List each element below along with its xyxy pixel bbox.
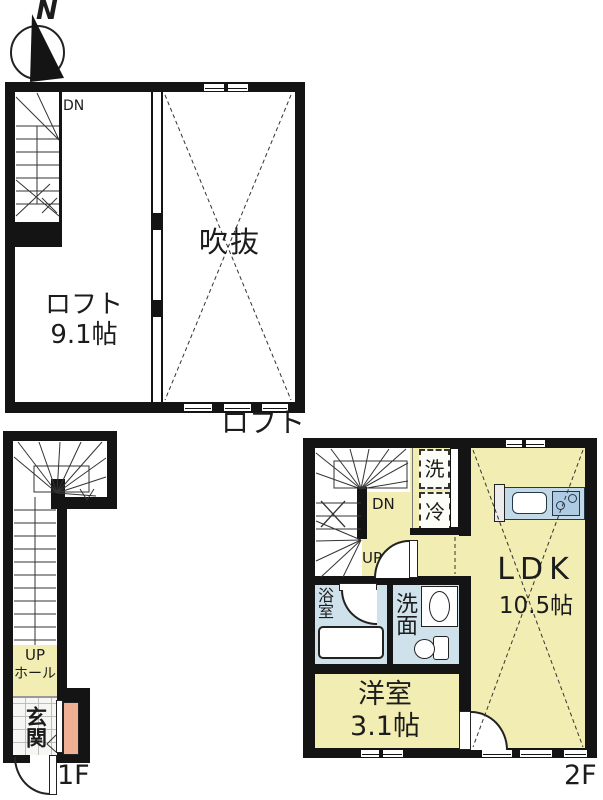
floor1-entry-door-slot <box>56 700 63 753</box>
bedroom-name: 洋室 <box>328 679 442 709</box>
floor2-partition-wall <box>450 448 459 528</box>
fridge-space: 冷 <box>419 492 451 532</box>
compass-circle <box>10 25 65 80</box>
bathroom-label: 浴室 <box>316 587 332 619</box>
stove-burner <box>556 501 565 510</box>
void-room-label: 吹抜 <box>188 226 272 258</box>
floor2-stairs-column <box>315 492 362 578</box>
ldk-room-name: LDK <box>488 553 584 587</box>
toilet-bowl <box>414 639 435 659</box>
bedroom-ldk-door-leaf <box>459 711 471 750</box>
floor2-stairs-down-label: DN <box>372 497 395 512</box>
toilet-tank <box>433 636 449 660</box>
floorplan-canvas: N <box>0 0 603 800</box>
floor1-caption: 1F <box>57 762 90 789</box>
floor1-hall-label: ホール <box>11 666 59 682</box>
floor2-caption: 2F <box>564 762 597 789</box>
ldk-top-window-mullion <box>522 439 526 448</box>
bedroom-window-mullion <box>379 749 383 758</box>
floor2-stairs-upper <box>315 448 410 492</box>
loft-top-window-mullion <box>224 83 228 92</box>
floor2-wall-kitchen-side <box>459 448 471 536</box>
loft-bottom-window <box>183 403 213 412</box>
ldk-bottom-window <box>563 749 588 758</box>
floor2-wall-ldk-side <box>459 576 471 711</box>
ldk-bottom-window <box>519 749 553 758</box>
loft-divider-post <box>151 300 163 317</box>
floor1-stairs-up-label: UP <box>13 647 57 664</box>
stove-burner <box>568 494 577 503</box>
loft-caption: ロフト <box>221 409 305 437</box>
floor1-entrance-label: 玄関 <box>13 701 57 753</box>
hall-door-leaf <box>409 540 418 578</box>
appliance-niche-edge <box>412 448 413 528</box>
floor2-stair-newel-wall <box>357 487 367 539</box>
loft-stairs-edge-wall <box>59 92 62 223</box>
ldk-room-size: 10.5帖 <box>488 592 584 620</box>
floor1-stair-newel-wall <box>51 479 65 509</box>
ldk-bottom-window <box>481 749 513 758</box>
washer-space: 洗 <box>419 449 450 489</box>
washroom-label: 洗面 <box>393 592 415 636</box>
loft-divider-post <box>151 213 163 230</box>
floor1-entry-door-panel <box>63 702 79 755</box>
loft-stairwell-wall-block <box>5 222 62 247</box>
compass-north-label: N <box>36 0 58 24</box>
floor2-stairs-up-label: UP <box>362 551 382 566</box>
washbasin-bowl <box>429 591 450 622</box>
floor1-entrance-door-leaf <box>49 755 57 795</box>
bedroom-size: 3.1帖 <box>328 711 442 741</box>
floor2-wall-below-fridge <box>410 528 459 535</box>
kitchen-counter-end-panel <box>494 484 505 522</box>
loft-room-size: 9.1帖 <box>38 321 130 349</box>
loft-room-name: ロフト <box>38 291 130 319</box>
kitchen-sink <box>512 492 547 514</box>
floor2-wall-bed-top <box>305 664 459 674</box>
loft-stairs-down-label: DN <box>63 99 84 113</box>
loft-divider-wall <box>151 92 163 402</box>
compass: N <box>0 0 90 95</box>
floor1-entrance-door-swing <box>14 757 50 795</box>
bathtub <box>318 626 384 659</box>
